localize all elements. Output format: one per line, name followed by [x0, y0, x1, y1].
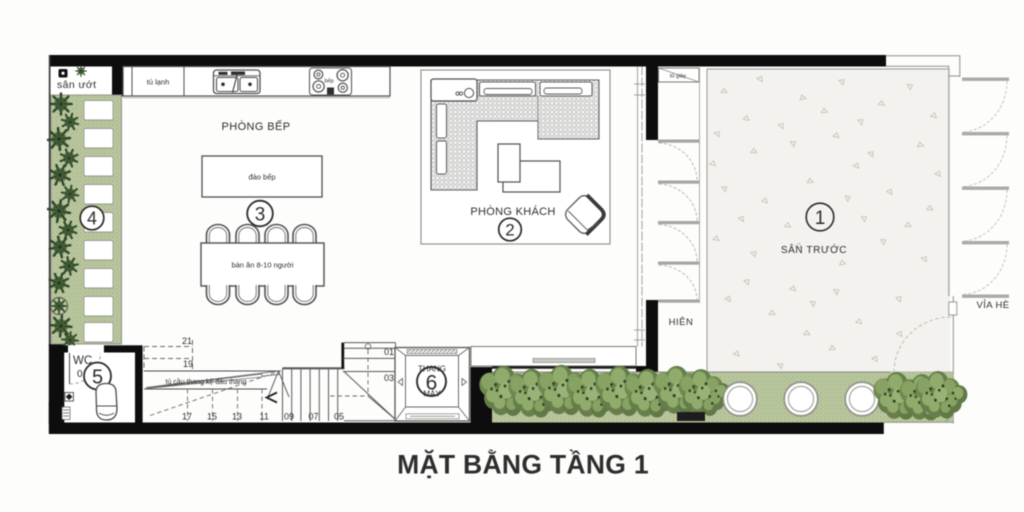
svg-text:SÂN TRƯỚC: SÂN TRƯỚC — [781, 243, 847, 256]
svg-text:sân ướt: sân ướt — [57, 79, 96, 91]
svg-text:09: 09 — [284, 412, 294, 422]
svg-text:tủ lạnh: tủ lạnh — [147, 78, 170, 87]
svg-text:11: 11 — [260, 412, 269, 422]
svg-text:4: 4 — [87, 209, 97, 229]
svg-text:1: 1 — [815, 208, 826, 229]
svg-text:bàn ăn 8-10 người: bàn ăn 8-10 người — [231, 261, 293, 270]
svg-text:PHÒNG BẾP: PHÒNG BẾP — [221, 120, 290, 133]
svg-text:6: 6 — [426, 372, 438, 395]
svg-text:PHÒNG KHÁCH: PHÒNG KHÁCH — [470, 205, 555, 218]
svg-text:MẶT BẰNG TẦNG 1: MẶT BẰNG TẦNG 1 — [397, 450, 649, 480]
svg-text:05: 05 — [334, 412, 344, 422]
svg-text:17: 17 — [182, 412, 192, 422]
svg-text:tủ cầu thang kệ đầu thang: tủ cầu thang kệ đầu thang — [166, 377, 247, 386]
svg-text:2: 2 — [505, 221, 514, 240]
svg-text:VỈA HÈ: VỈA HÈ — [976, 299, 1009, 311]
svg-text:đảo bếp: đảo bếp — [248, 173, 275, 182]
svg-text:0: 0 — [77, 369, 83, 380]
svg-text:21: 21 — [182, 336, 192, 346]
svg-text:15: 15 — [207, 412, 217, 422]
svg-text:07: 07 — [309, 412, 319, 422]
svg-text:bếp: bếp — [325, 79, 334, 85]
svg-text:19: 19 — [183, 359, 193, 369]
svg-text:HIÊN: HIÊN — [669, 317, 694, 328]
svg-text:tủ giày: tủ giày — [670, 73, 686, 80]
svg-text:3: 3 — [255, 205, 266, 226]
svg-text:03: 03 — [384, 373, 394, 383]
svg-text:01: 01 — [384, 347, 394, 357]
svg-text:13: 13 — [232, 412, 242, 422]
